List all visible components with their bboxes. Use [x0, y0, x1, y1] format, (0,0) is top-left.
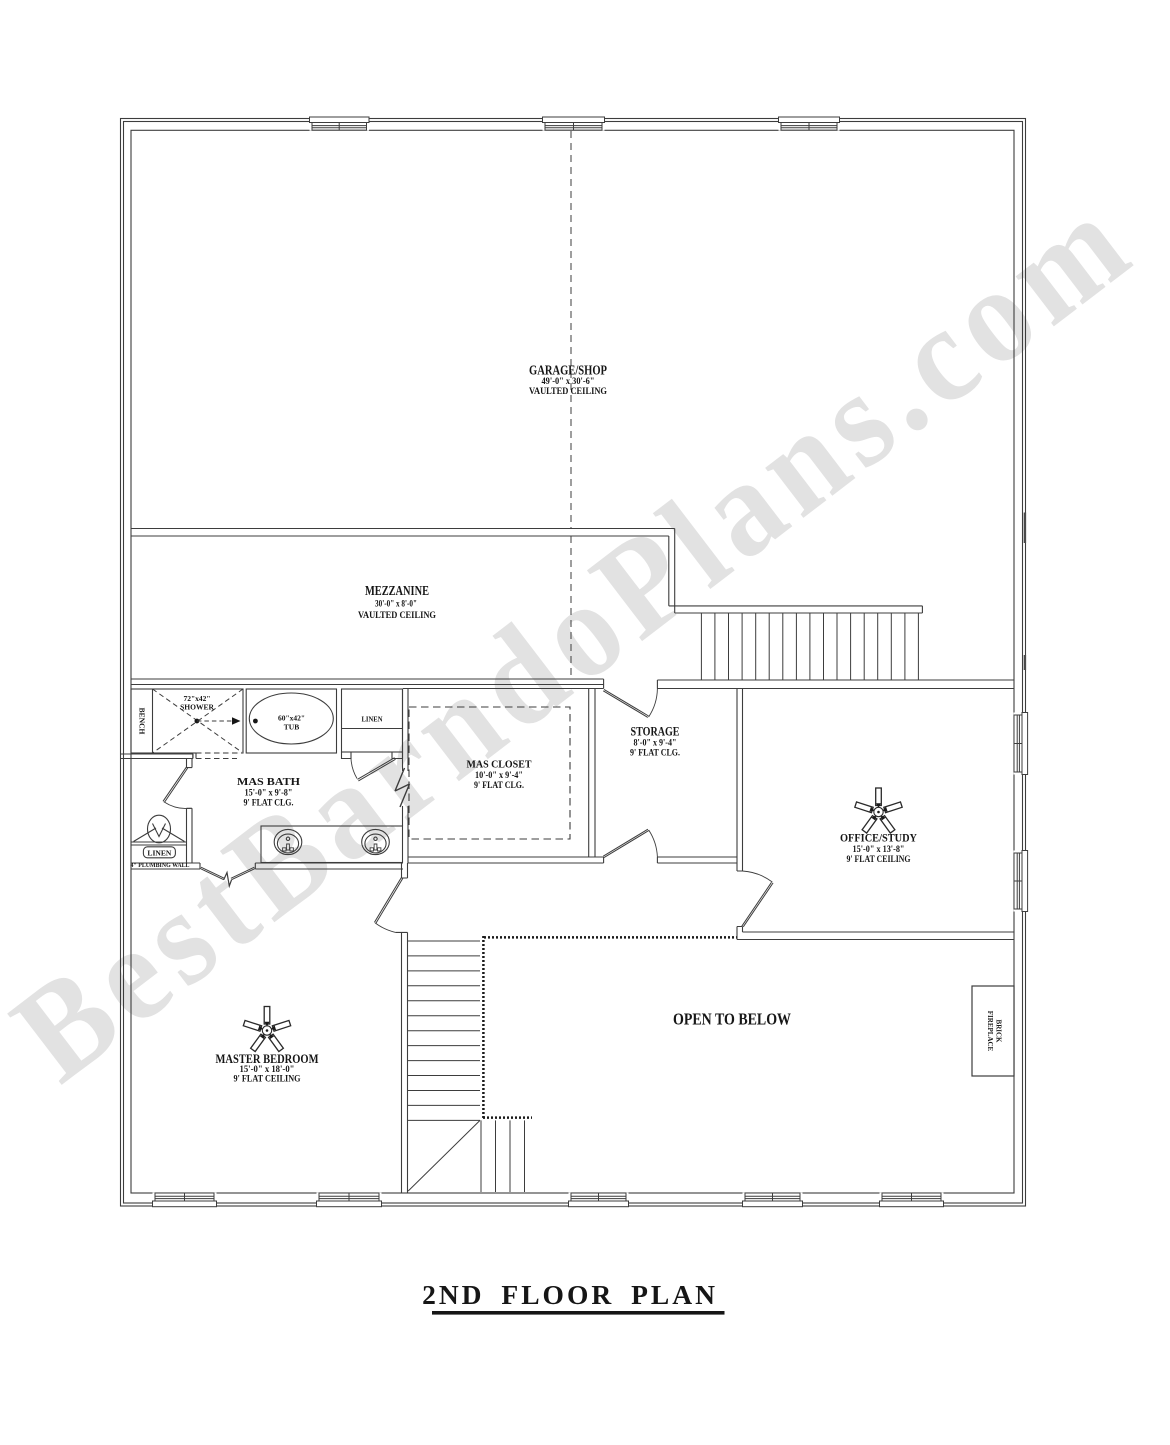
svg-text:9' FLAT CLG.: 9' FLAT CLG.	[630, 748, 680, 758]
svg-text:LINEN: LINEN	[362, 715, 384, 724]
svg-text:BENCH: BENCH	[138, 708, 147, 735]
svg-text:15'-0" x 13'-8": 15'-0" x 13'-8"	[853, 844, 905, 854]
svg-text:30'-0" x 8'-0": 30'-0" x 8'-0"	[375, 599, 417, 609]
svg-text:8'-0" x 9'-4": 8'-0" x 9'-4"	[634, 738, 677, 748]
svg-text:MAS BATH: MAS BATH	[237, 776, 300, 788]
svg-text:9' FLAT CEILING: 9' FLAT CEILING	[847, 854, 911, 864]
svg-text:LINEN: LINEN	[147, 850, 171, 858]
svg-text:MAS CLOSET: MAS CLOSET	[467, 759, 533, 771]
svg-text:VAULTED CEILING: VAULTED CEILING	[358, 610, 436, 621]
svg-text:10'-0" x 9'-4": 10'-0" x 9'-4"	[475, 770, 523, 780]
svg-text:BestBarndoPlans.com: BestBarndoPlans.com	[0, 162, 1160, 1110]
svg-text:60"x42": 60"x42"	[278, 714, 305, 723]
svg-text:2ND FLOOR PLAN: 2ND FLOOR PLAN	[422, 1279, 718, 1310]
svg-text:VAULTED CEILING: VAULTED CEILING	[529, 386, 607, 397]
svg-text:49'-0" x 30'-6": 49'-0" x 30'-6"	[542, 376, 595, 386]
svg-text:BRICK: BRICK	[995, 1020, 1003, 1044]
svg-text:STORAGE: STORAGE	[631, 724, 680, 739]
svg-text:9' FLAT CEILING: 9' FLAT CEILING	[234, 1074, 301, 1084]
svg-text:OPEN TO BELOW: OPEN TO BELOW	[673, 1010, 791, 1029]
svg-text:OFFICE/STUDY: OFFICE/STUDY	[840, 831, 917, 845]
svg-text:MEZZANINE: MEZZANINE	[365, 583, 429, 598]
svg-text:TUB: TUB	[284, 723, 299, 732]
svg-text:4" PLUMBING WALL: 4" PLUMBING WALL	[131, 862, 191, 869]
svg-text:FIREPLACE: FIREPLACE	[986, 1011, 994, 1052]
svg-text:9' FLAT CLG.: 9' FLAT CLG.	[474, 780, 524, 790]
svg-text:15'-0" x 9'-8": 15'-0" x 9'-8"	[245, 788, 293, 798]
svg-text:SHOWER: SHOWER	[180, 703, 214, 712]
svg-text:15'-0" x 18'-0": 15'-0" x 18'-0"	[240, 1064, 295, 1074]
svg-text:9' FLAT CLG.: 9' FLAT CLG.	[244, 798, 294, 808]
